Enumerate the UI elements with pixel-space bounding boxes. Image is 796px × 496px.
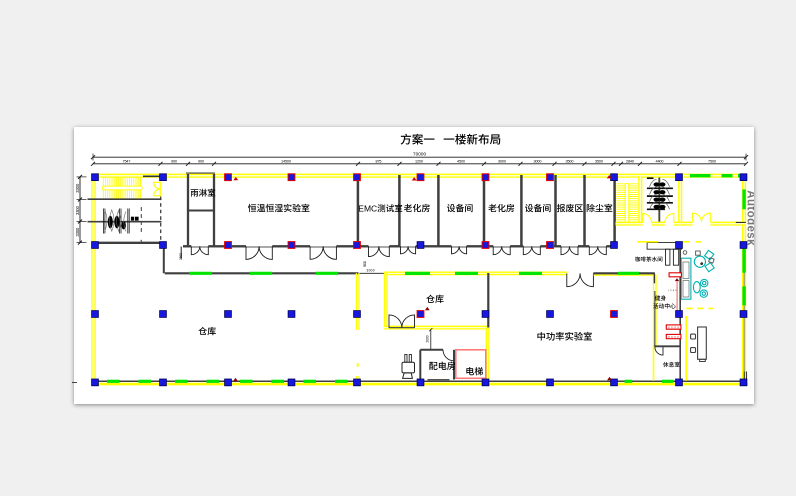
- svg-text:2000: 2000: [426, 335, 430, 342]
- svg-text:5000: 5000: [363, 261, 367, 267]
- svg-text:14500: 14500: [281, 160, 291, 164]
- svg-text:3500: 3500: [595, 160, 603, 164]
- svg-text:jsqc: jsqc: [668, 288, 678, 292]
- svg-text:1200: 1200: [415, 160, 423, 164]
- svg-text:70000: 70000: [413, 152, 426, 157]
- svg-text:3300: 3300: [75, 183, 80, 193]
- svg-text:3300: 3300: [75, 205, 80, 215]
- svg-text:3500: 3500: [566, 160, 574, 164]
- svg-text:2840: 2840: [626, 160, 634, 164]
- svg-text:4400: 4400: [656, 160, 664, 164]
- svg-text:3000: 3000: [534, 160, 542, 164]
- svg-text:7547: 7547: [123, 160, 131, 164]
- svg-text:2500: 2500: [179, 253, 183, 260]
- svg-text:4500: 4500: [457, 160, 465, 164]
- svg-text:3000: 3000: [367, 268, 375, 272]
- svg-text:7500: 7500: [708, 160, 716, 164]
- svg-text:900: 900: [171, 160, 177, 164]
- svg-text:XXXX: XXXX: [668, 335, 679, 339]
- svg-text:900: 900: [198, 160, 204, 164]
- svg-text:EMC: EMC: [358, 203, 377, 213]
- svg-text:3300: 3300: [75, 227, 80, 237]
- svg-text:XXXX: XXXX: [668, 326, 679, 330]
- svg-text:875: 875: [376, 160, 382, 164]
- svg-text:3000: 3000: [498, 160, 506, 164]
